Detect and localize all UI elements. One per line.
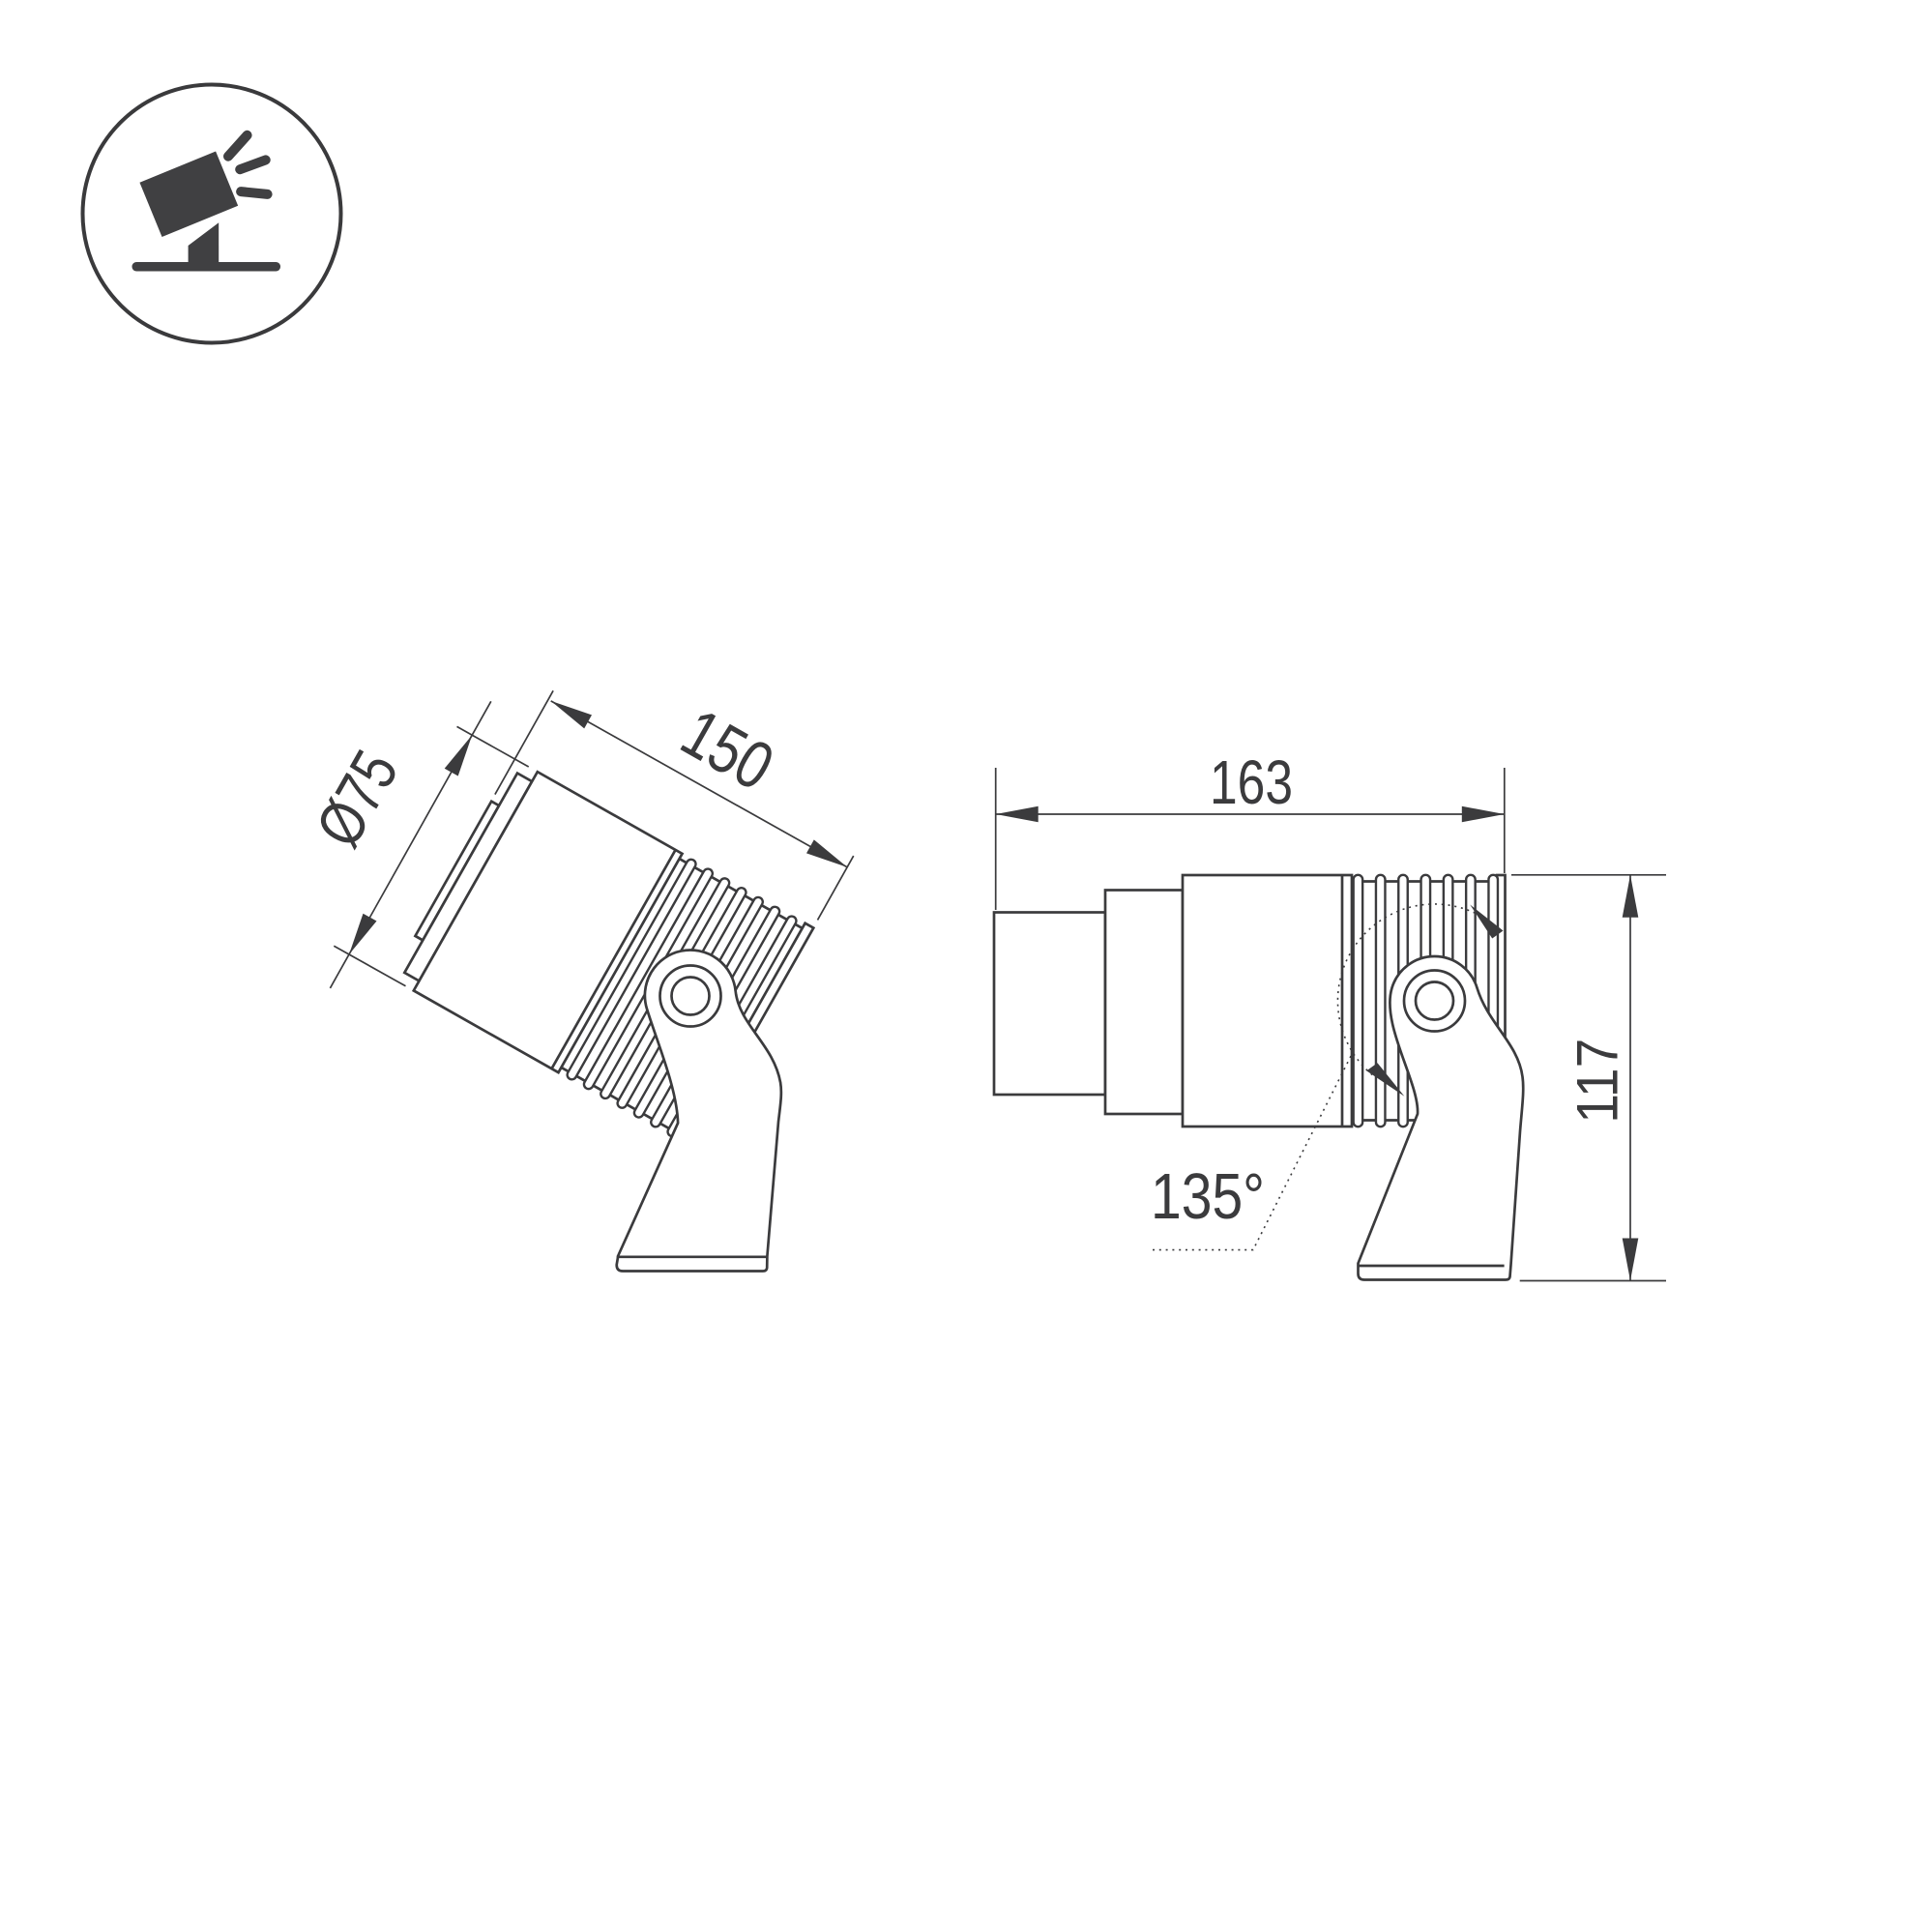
- svg-text:163: 163: [1210, 747, 1293, 817]
- svg-text:135°: 135°: [1151, 1160, 1265, 1233]
- svg-text:117: 117: [1566, 1039, 1630, 1124]
